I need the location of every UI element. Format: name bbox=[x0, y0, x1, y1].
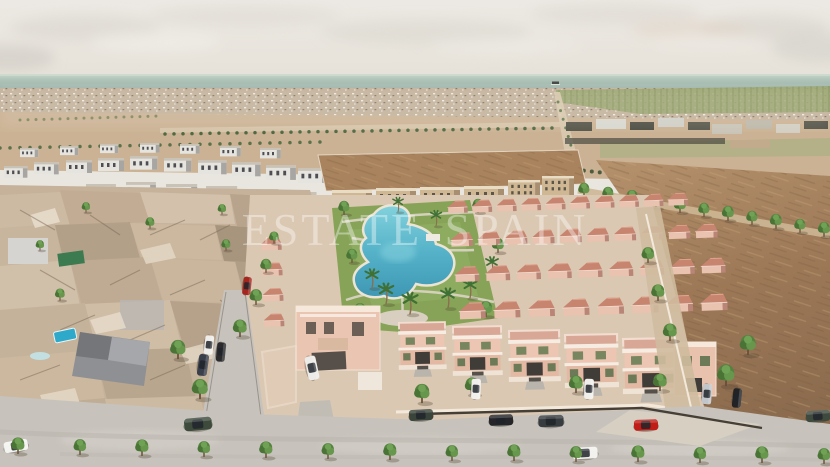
pool-pavilion bbox=[426, 234, 440, 241]
aerial-render-photo: ESTATE SPAIN bbox=[0, 0, 830, 467]
development bbox=[235, 191, 728, 436]
scene-canvas bbox=[0, 0, 830, 467]
ship bbox=[551, 82, 560, 86]
haze bbox=[0, 88, 830, 128]
